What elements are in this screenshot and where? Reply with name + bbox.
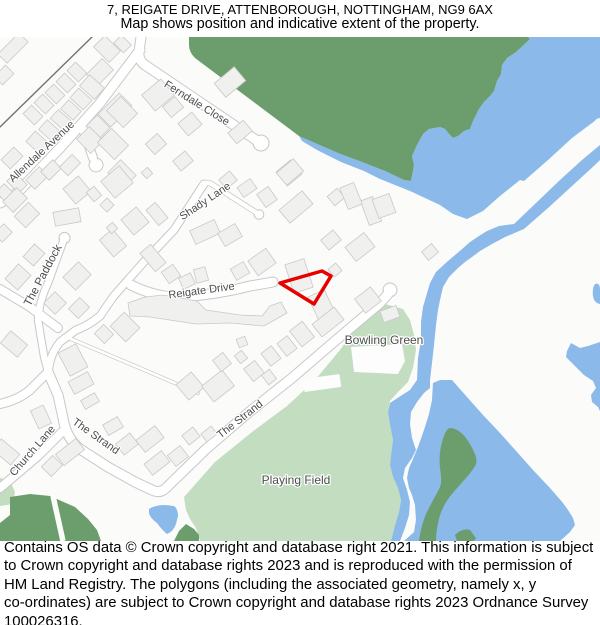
- svg-text:Playing Field: Playing Field: [262, 473, 331, 487]
- svg-text:Bowling Green: Bowling Green: [345, 333, 424, 347]
